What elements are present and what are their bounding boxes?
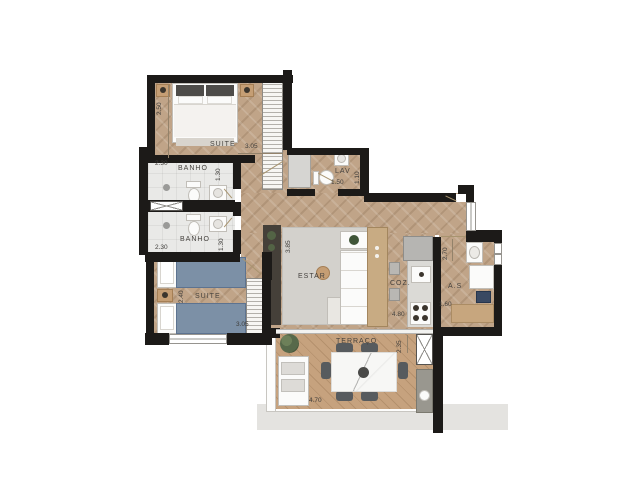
- suite1-pillow-right: [206, 85, 234, 96]
- terrace-sofa-cushion-2: [281, 379, 305, 392]
- banho2-toilet-bowl: [188, 221, 200, 236]
- wall-suite2-bottom-left: [145, 333, 169, 345]
- suite2-dim-length: 3.05: [236, 321, 249, 328]
- suite1-lamp-right: [244, 87, 250, 93]
- terrace-sliding-door: [276, 329, 433, 334]
- dim-line-suite1-h: [238, 153, 283, 154]
- wall-coz-as-divider: [433, 237, 441, 335]
- wall-wardrobe1-right: [283, 70, 292, 150]
- dim-line-terrace-v: [407, 335, 408, 353]
- entry-opening: [456, 194, 466, 202]
- stove-burner-4: [422, 315, 428, 321]
- terraco-dim-width: 4.70: [309, 397, 322, 404]
- stove-burner-2: [422, 305, 428, 311]
- suite1-duvet: [174, 104, 236, 137]
- kitchen-island: [367, 227, 388, 327]
- suite1-dim-width: 2.50: [156, 102, 163, 115]
- wall-suite1-top: [147, 75, 293, 83]
- wall-as-bottom: [436, 327, 502, 336]
- island-knob-2: [375, 254, 379, 258]
- as-door-line: [441, 236, 466, 237]
- suite1-white-pillow-right: [207, 96, 232, 104]
- lav-dim-length: 1.10: [354, 171, 361, 184]
- banho2-dim-length: 1.30: [218, 238, 225, 251]
- wall-suite2-corner: [262, 252, 272, 280]
- as-dim-height: 2.70: [442, 247, 449, 260]
- laundry-basket: [476, 291, 491, 303]
- banho2-label: BANHO: [180, 236, 210, 243]
- suite2-bed-lower-duvet: [176, 303, 246, 334]
- lav-label: LAV: [335, 168, 351, 175]
- island-stool-2: [389, 288, 400, 301]
- suite2-bed-upper-pillow: [160, 260, 174, 284]
- banho2-dim-width: 2.30: [155, 244, 168, 251]
- estar-console-plant-1: [267, 231, 276, 240]
- suite1-label: SUITE: [210, 141, 236, 148]
- banho1-toilet-tank: [186, 181, 201, 188]
- banho2-sink-basin: [213, 219, 223, 229]
- suite2-lamp: [162, 292, 168, 298]
- suite2-label: SUITE: [195, 293, 221, 300]
- estar-label: ESTAR: [298, 273, 326, 280]
- suite1-pillow-left: [176, 85, 204, 96]
- stove-burner-3: [413, 315, 419, 321]
- terraco-dim-height: 2.35: [396, 340, 403, 353]
- lav-shower: [288, 150, 311, 188]
- estar-dim-height: 3.85: [285, 240, 292, 253]
- wall-lav-bottom-left: [287, 189, 315, 196]
- hall-window: [466, 202, 476, 231]
- dim-line-as-v: [452, 239, 453, 261]
- wall-lav-right: [360, 148, 369, 195]
- suite2-window: [169, 334, 227, 344]
- banho1-shower-head: [163, 184, 170, 191]
- suite2-dim-width: 2.40: [178, 290, 185, 303]
- estar-sofa-plant: [349, 235, 359, 245]
- terrace-grill-sink: [419, 390, 430, 401]
- banho1-dim-width: 2.30: [155, 160, 168, 167]
- wall-lav-top: [287, 148, 368, 155]
- kitchen-sink-faucet: [419, 272, 424, 277]
- terrace-duct-shaft: [416, 334, 433, 365]
- coz-label: COZ.: [390, 280, 411, 287]
- estar-console-plant-2: [268, 244, 275, 251]
- suite1-dim-length: 3.05: [245, 143, 258, 150]
- estar-sofa: [340, 250, 368, 325]
- suite1-white-pillow-left: [178, 96, 203, 104]
- wall-terrace-right: [433, 333, 443, 433]
- wall-banho-right-1: [233, 155, 241, 189]
- terrace-sofa-cushion-1: [281, 362, 305, 375]
- wall-banho2-suite2-divider: [145, 252, 240, 262]
- lav-sink-basin: [337, 154, 346, 163]
- banho1-sink-basin: [213, 188, 223, 198]
- suite1-lamp-left: [160, 87, 166, 93]
- laundry-tank-basin: [469, 246, 480, 259]
- terrace-chair-right: [398, 362, 408, 379]
- terrace-chair-bottom-2: [361, 391, 378, 401]
- estar-side-table-low: [327, 297, 341, 325]
- island-stool-1: [389, 262, 400, 275]
- wall-lav-bottom-right: [338, 189, 364, 196]
- as-window: [494, 243, 502, 265]
- banho2-shower-head: [163, 222, 170, 229]
- wall-hall-top: [364, 193, 456, 202]
- island-knob-1: [375, 246, 379, 250]
- terrace-plant: [280, 334, 299, 353]
- as-label: A.S: [448, 283, 462, 290]
- washing-machine: [469, 265, 494, 289]
- as-dim-width: 1.60: [439, 301, 452, 308]
- banho-duct-shaft: [150, 201, 183, 211]
- banho2-toilet-tank: [186, 214, 201, 221]
- wall-suite2-left: [146, 253, 154, 339]
- banho1-dim-length: 1.30: [215, 168, 222, 181]
- kitchen-fridge: [403, 236, 433, 261]
- dim-line-suite1-v: [168, 85, 169, 158]
- terrace-chair-left: [321, 362, 331, 379]
- floor-plan: SUITE BANHO BANHO SUITE LAV ESTAR COZ. A…: [0, 0, 640, 504]
- terraco-label: TERRAÇO: [336, 338, 377, 345]
- terrace-table-centerpiece: [358, 367, 369, 378]
- terrace-chair-bottom-1: [336, 391, 353, 401]
- suite2-bed-lower-pillow: [160, 306, 174, 330]
- banho1-label: BANHO: [178, 165, 208, 172]
- wall-banho-right-3: [233, 230, 241, 254]
- laundry-mat: [451, 304, 494, 323]
- stove-burner-1: [413, 305, 419, 311]
- coz-dim-length: 4.80: [392, 311, 405, 318]
- lav-dim-width: 1.50: [331, 179, 344, 186]
